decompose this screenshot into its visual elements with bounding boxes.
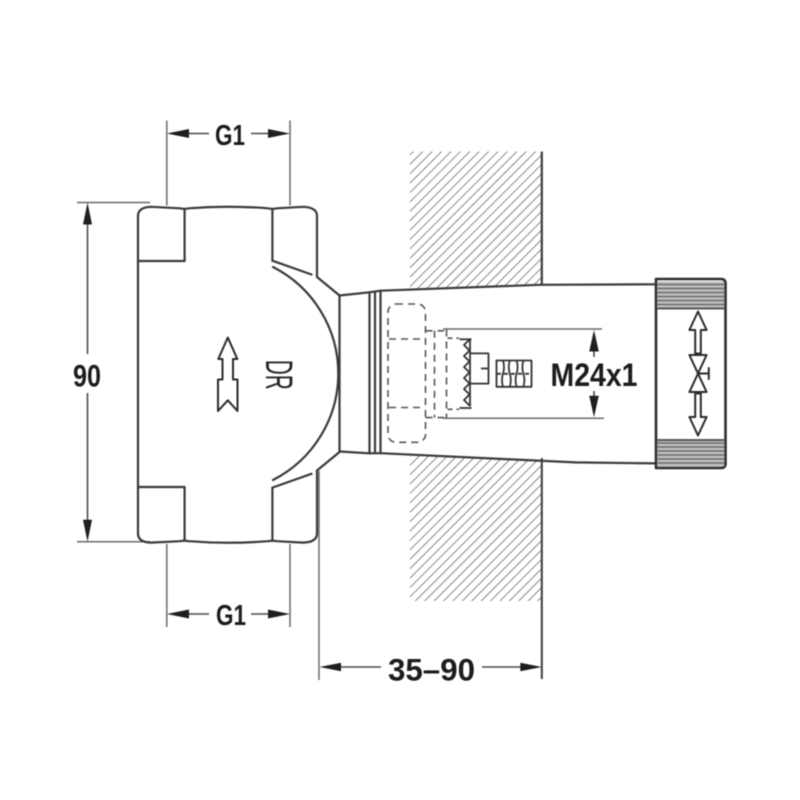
- svg-text:90: 90: [73, 358, 101, 394]
- svg-text:DR: DR: [257, 360, 299, 390]
- svg-text:G1: G1: [215, 120, 245, 152]
- svg-text:35–90: 35–90: [388, 652, 475, 688]
- svg-text:G1: G1: [216, 600, 246, 632]
- svg-text:M24x1: M24x1: [551, 357, 638, 393]
